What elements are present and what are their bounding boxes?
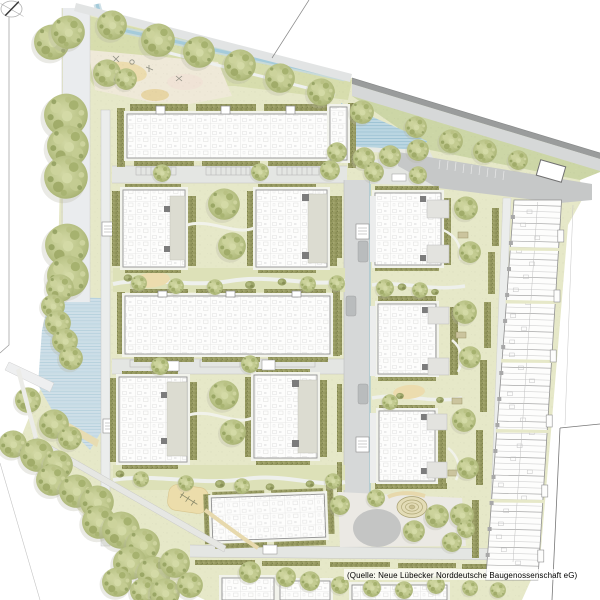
svg-text:(Quelle: Neue Lübecker Norddeu: (Quelle: Neue Lübecker Norddeutsche Baug…	[347, 571, 578, 580]
